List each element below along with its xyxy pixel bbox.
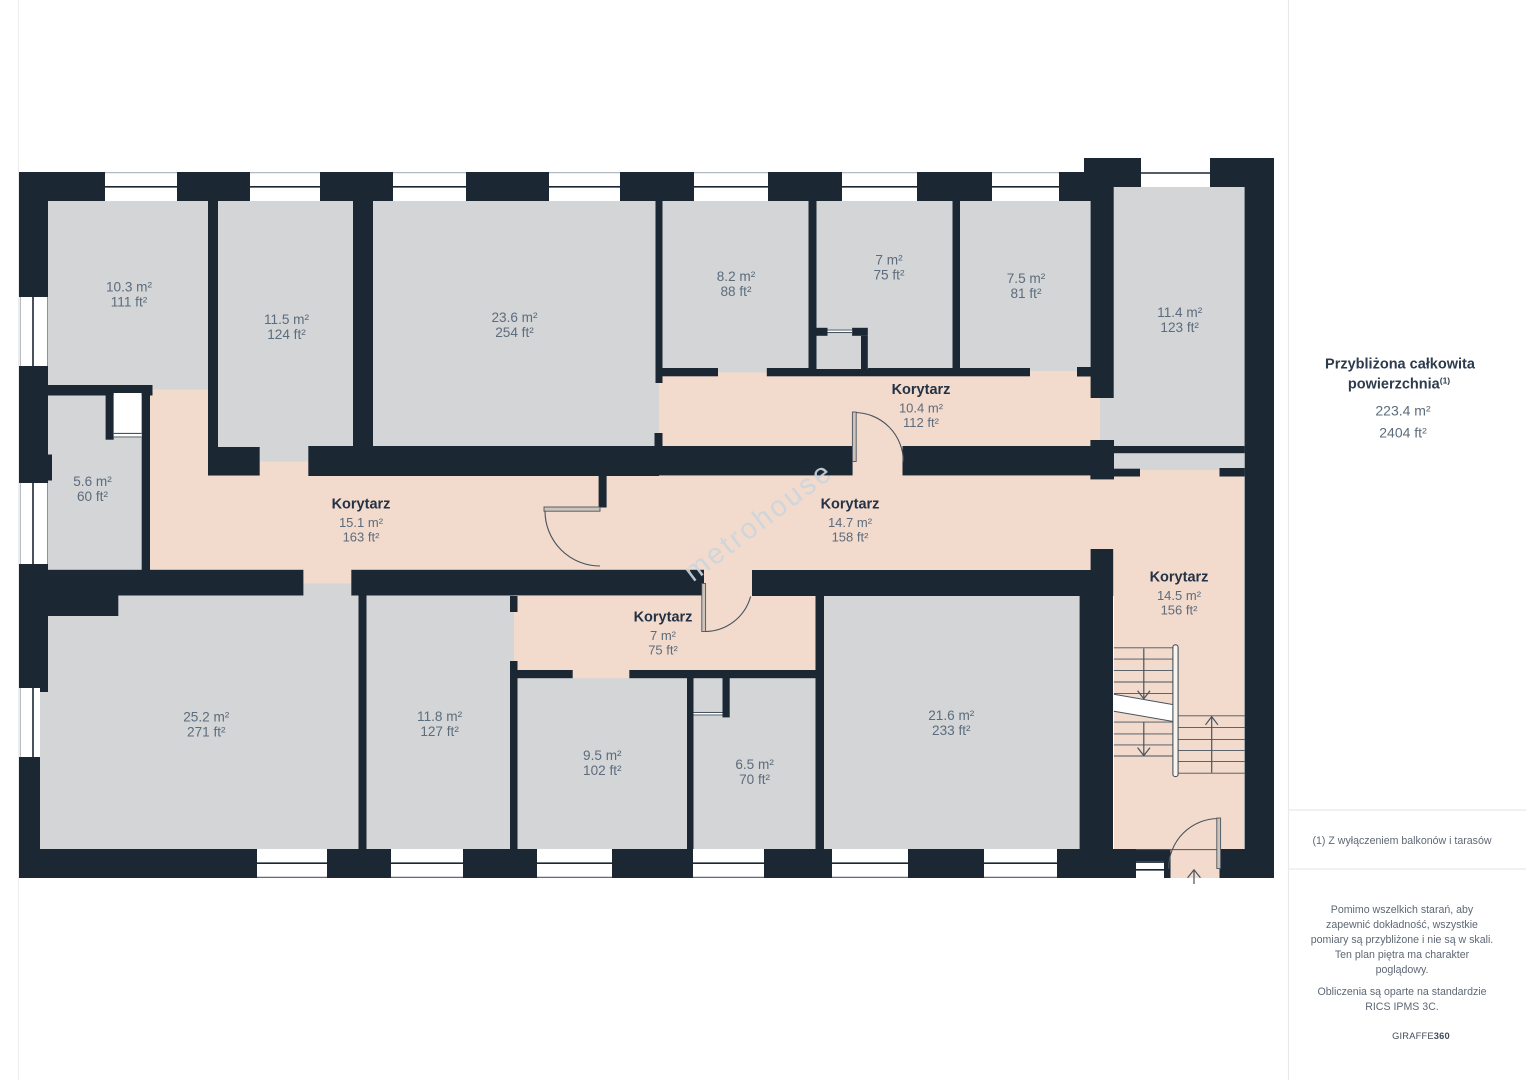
svg-text:127 ft²: 127 ft² xyxy=(420,724,459,739)
svg-text:2404 ft²: 2404 ft² xyxy=(1379,425,1427,441)
svg-text:8.2 m²: 8.2 m² xyxy=(717,269,756,284)
svg-text:11.5 m²: 11.5 m² xyxy=(264,312,310,327)
svg-text:Korytarz: Korytarz xyxy=(634,610,693,626)
svg-text:6.5 m²: 6.5 m² xyxy=(735,757,774,772)
svg-text:Korytarz: Korytarz xyxy=(821,497,880,513)
svg-text:25.2 m²: 25.2 m² xyxy=(183,710,230,725)
svg-text:Obliczenia są oparte na standa: Obliczenia są oparte na standardzie xyxy=(1317,986,1486,998)
svg-text:70 ft²: 70 ft² xyxy=(739,772,770,787)
svg-text:21.6 m²: 21.6 m² xyxy=(928,708,975,723)
svg-text:5.6 m²: 5.6 m² xyxy=(73,474,112,489)
svg-text:102 ft²: 102 ft² xyxy=(583,763,622,778)
svg-text:254 ft²: 254 ft² xyxy=(495,325,534,340)
svg-text:158 ft²: 158 ft² xyxy=(832,529,870,544)
svg-text:233 ft²: 233 ft² xyxy=(932,723,971,738)
svg-text:RICS IPMS 3C.: RICS IPMS 3C. xyxy=(1365,1001,1439,1013)
svg-text:7 m²: 7 m² xyxy=(875,253,903,268)
svg-text:Ten plan piętra ma charakter: Ten plan piętra ma charakter xyxy=(1335,949,1470,961)
svg-text:11.8 m²: 11.8 m² xyxy=(417,709,463,724)
svg-text:Pomimo wszelkich starań, aby: Pomimo wszelkich starań, aby xyxy=(1331,904,1474,916)
svg-text:7.5 m²: 7.5 m² xyxy=(1007,271,1046,286)
svg-text:163 ft²: 163 ft² xyxy=(343,529,381,544)
svg-text:11.4 m²: 11.4 m² xyxy=(1157,305,1203,320)
svg-text:Korytarz: Korytarz xyxy=(332,497,391,513)
svg-text:75 ft²: 75 ft² xyxy=(648,643,678,658)
svg-text:23.6 m²: 23.6 m² xyxy=(491,310,538,325)
svg-text:10.4 m²: 10.4 m² xyxy=(899,400,944,415)
svg-text:111 ft²: 111 ft² xyxy=(111,295,148,310)
svg-text:zapewnić dokładność, wszystkie: zapewnić dokładność, wszystkie xyxy=(1326,919,1478,931)
svg-text:14.7 m²: 14.7 m² xyxy=(828,515,873,530)
svg-text:124 ft²: 124 ft² xyxy=(267,327,306,342)
svg-text:75 ft²: 75 ft² xyxy=(874,268,905,283)
svg-text:123 ft²: 123 ft² xyxy=(1160,320,1199,335)
svg-text:9.5 m²: 9.5 m² xyxy=(583,748,622,763)
svg-text:81 ft²: 81 ft² xyxy=(1011,286,1042,301)
svg-text:223.4 m²: 223.4 m² xyxy=(1375,403,1431,419)
svg-text:Korytarz: Korytarz xyxy=(892,382,951,398)
svg-text:156 ft²: 156 ft² xyxy=(1161,602,1199,617)
svg-text:60 ft²: 60 ft² xyxy=(77,489,108,504)
svg-text:112 ft²: 112 ft² xyxy=(903,415,940,430)
svg-text:15.1 m²: 15.1 m² xyxy=(339,515,384,530)
svg-text:Korytarz: Korytarz xyxy=(1150,570,1209,586)
svg-text:GIRAFFE360: GIRAFFE360 xyxy=(1392,1031,1450,1041)
svg-text:88 ft²: 88 ft² xyxy=(721,284,752,299)
svg-text:(1) Z wyłączeniem balkonów i t: (1) Z wyłączeniem balkonów i tarasów xyxy=(1313,835,1492,847)
svg-text:pomiary są przybliżone i nie s: pomiary są przybliżone i nie są w skali. xyxy=(1311,934,1494,946)
svg-text:powierzchnia(1): powierzchnia(1) xyxy=(1348,376,1450,393)
svg-text:10.3 m²: 10.3 m² xyxy=(106,280,153,295)
svg-text:poglądowy.: poglądowy. xyxy=(1376,964,1429,976)
svg-text:271 ft²: 271 ft² xyxy=(187,725,226,740)
svg-text:Przybliżona całkowita: Przybliżona całkowita xyxy=(1325,357,1476,373)
svg-text:7 m²: 7 m² xyxy=(650,628,677,643)
svg-text:14.5 m²: 14.5 m² xyxy=(1157,588,1202,603)
